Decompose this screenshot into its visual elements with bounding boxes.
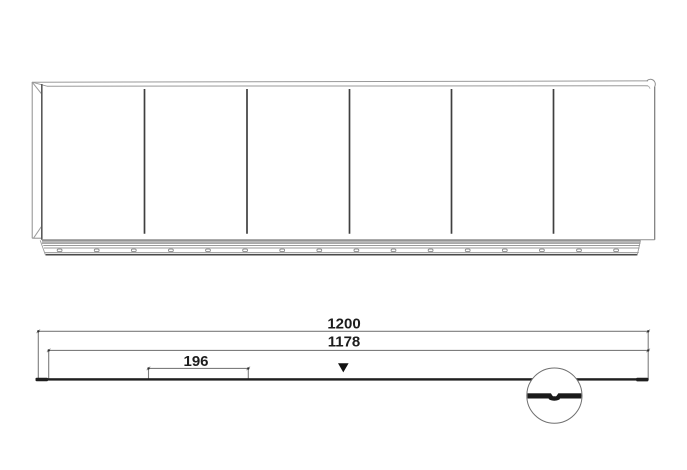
svg-text:1200: 1200 [327, 315, 360, 332]
svg-text:196: 196 [183, 353, 208, 370]
svg-text:1178: 1178 [328, 334, 361, 351]
